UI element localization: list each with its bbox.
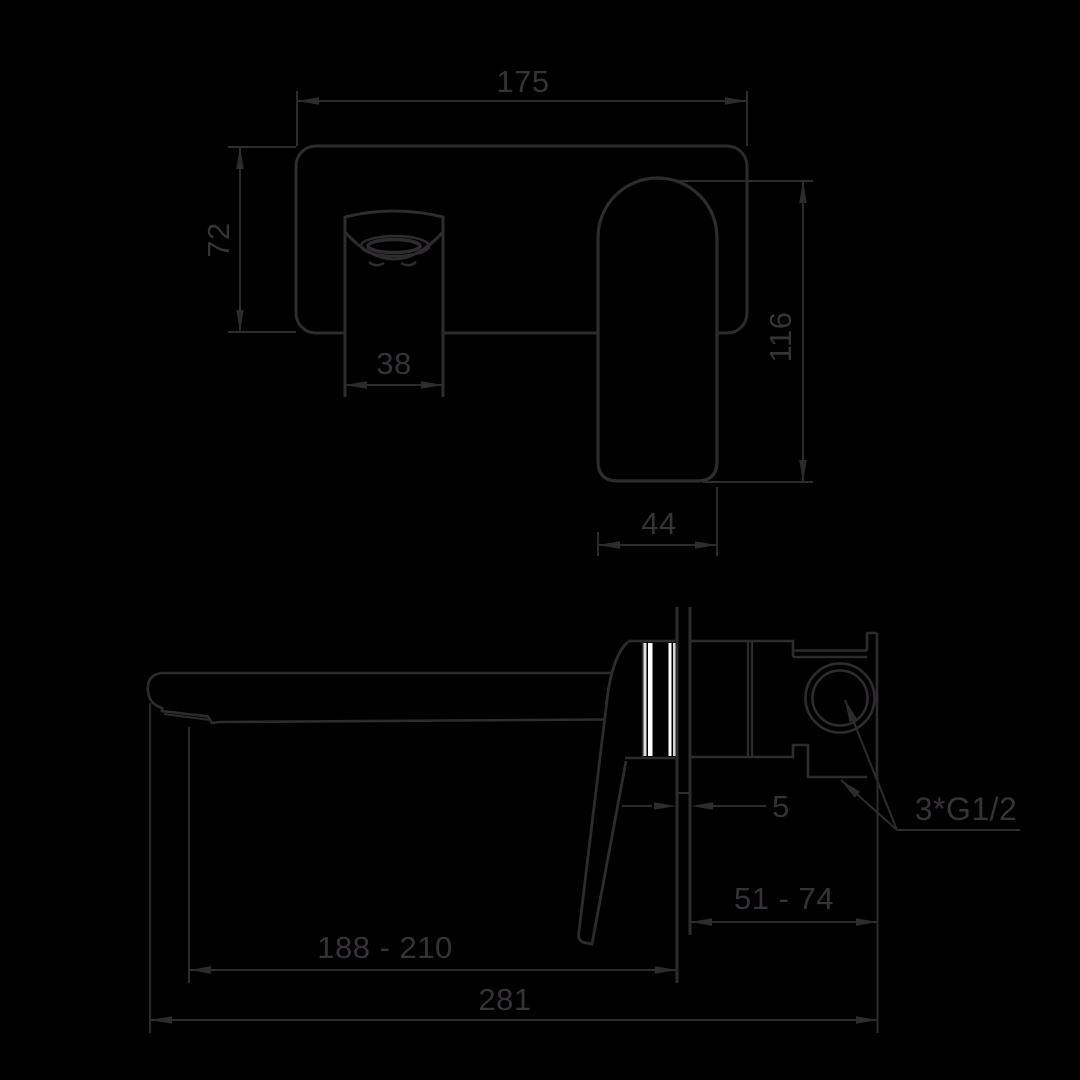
escutcheon-collar (625, 641, 676, 758)
thread-label: 3*G1/2 (915, 791, 1018, 827)
arrowhead (655, 966, 677, 974)
leader-arrowhead (845, 700, 857, 722)
arrowhead (654, 802, 676, 810)
dim-plate-width-extensions (297, 91, 747, 146)
dim-handle-width: 44 (598, 487, 717, 556)
inlet-port-outer-circle (806, 664, 875, 733)
arrowhead (345, 381, 367, 389)
lever-handle-side-view (578, 642, 628, 944)
arrowhead (150, 1016, 172, 1024)
arrowhead (799, 181, 807, 203)
dim-total-depth: 281 (150, 982, 878, 1024)
spout-side-view (148, 673, 612, 723)
dim-wall-sleeve: 5 (622, 789, 790, 824)
technical-drawing: 175 72 38 (0, 0, 1080, 1080)
dim-label-handle-width: 44 (641, 506, 676, 541)
dim-label-total-depth: 281 (478, 982, 531, 1017)
dim-label-in-wall-depth: 51 - 74 (734, 881, 834, 916)
spout-profile (148, 673, 612, 723)
arrowhead (189, 966, 211, 974)
spout-top-arc (345, 211, 443, 217)
spout-body-mask (346, 217, 442, 335)
collar-highlight-stripe (644, 643, 647, 756)
dim-plate-height-extensions (228, 147, 296, 332)
collar-highlight-stripe (648, 643, 653, 756)
arrowhead (856, 1016, 878, 1024)
wall-section (677, 607, 690, 983)
dim-plate-height: 72 (201, 147, 296, 332)
dim-label-plate-height: 72 (201, 222, 236, 257)
dim-label-handle-length: 116 (763, 312, 798, 363)
arrowhead (297, 97, 319, 105)
dim-label-spout-reach: 188 - 210 (317, 930, 453, 965)
valve-body-outline (690, 633, 877, 777)
dim-in-wall-depth: 51 - 74 (690, 881, 878, 926)
technical-drawing-canvas: 175 72 38 (0, 0, 1080, 1080)
collar-highlight-stripe (669, 643, 672, 756)
inlet-port-inner-circle (813, 671, 868, 726)
valve-body (690, 633, 877, 777)
arrowhead (695, 541, 717, 549)
arrowhead (236, 310, 244, 332)
arrowhead (236, 147, 244, 169)
dim-plate-width: 175 (297, 64, 747, 146)
arrowhead (598, 541, 620, 549)
dim-label-wall-sleeve: 5 (772, 789, 790, 824)
arrowhead (421, 381, 443, 389)
arrowhead (690, 918, 712, 926)
arrowhead (856, 918, 878, 926)
arrowhead (799, 460, 807, 482)
cartridge-joint-lines (748, 641, 752, 757)
front-view: 175 72 38 (201, 64, 813, 556)
dim-spout-width: 38 (345, 346, 443, 389)
arrowhead (725, 97, 747, 105)
arrowhead (691, 802, 713, 810)
dim-label-plate-width: 175 (496, 64, 549, 99)
dim-spout-reach: 188 - 210 (189, 930, 677, 974)
side-view: 3*G1/2 5 51 - 74 188 - 210 (148, 607, 1020, 1033)
handle-front-view (598, 178, 717, 481)
dim-label-spout-width: 38 (376, 346, 411, 381)
